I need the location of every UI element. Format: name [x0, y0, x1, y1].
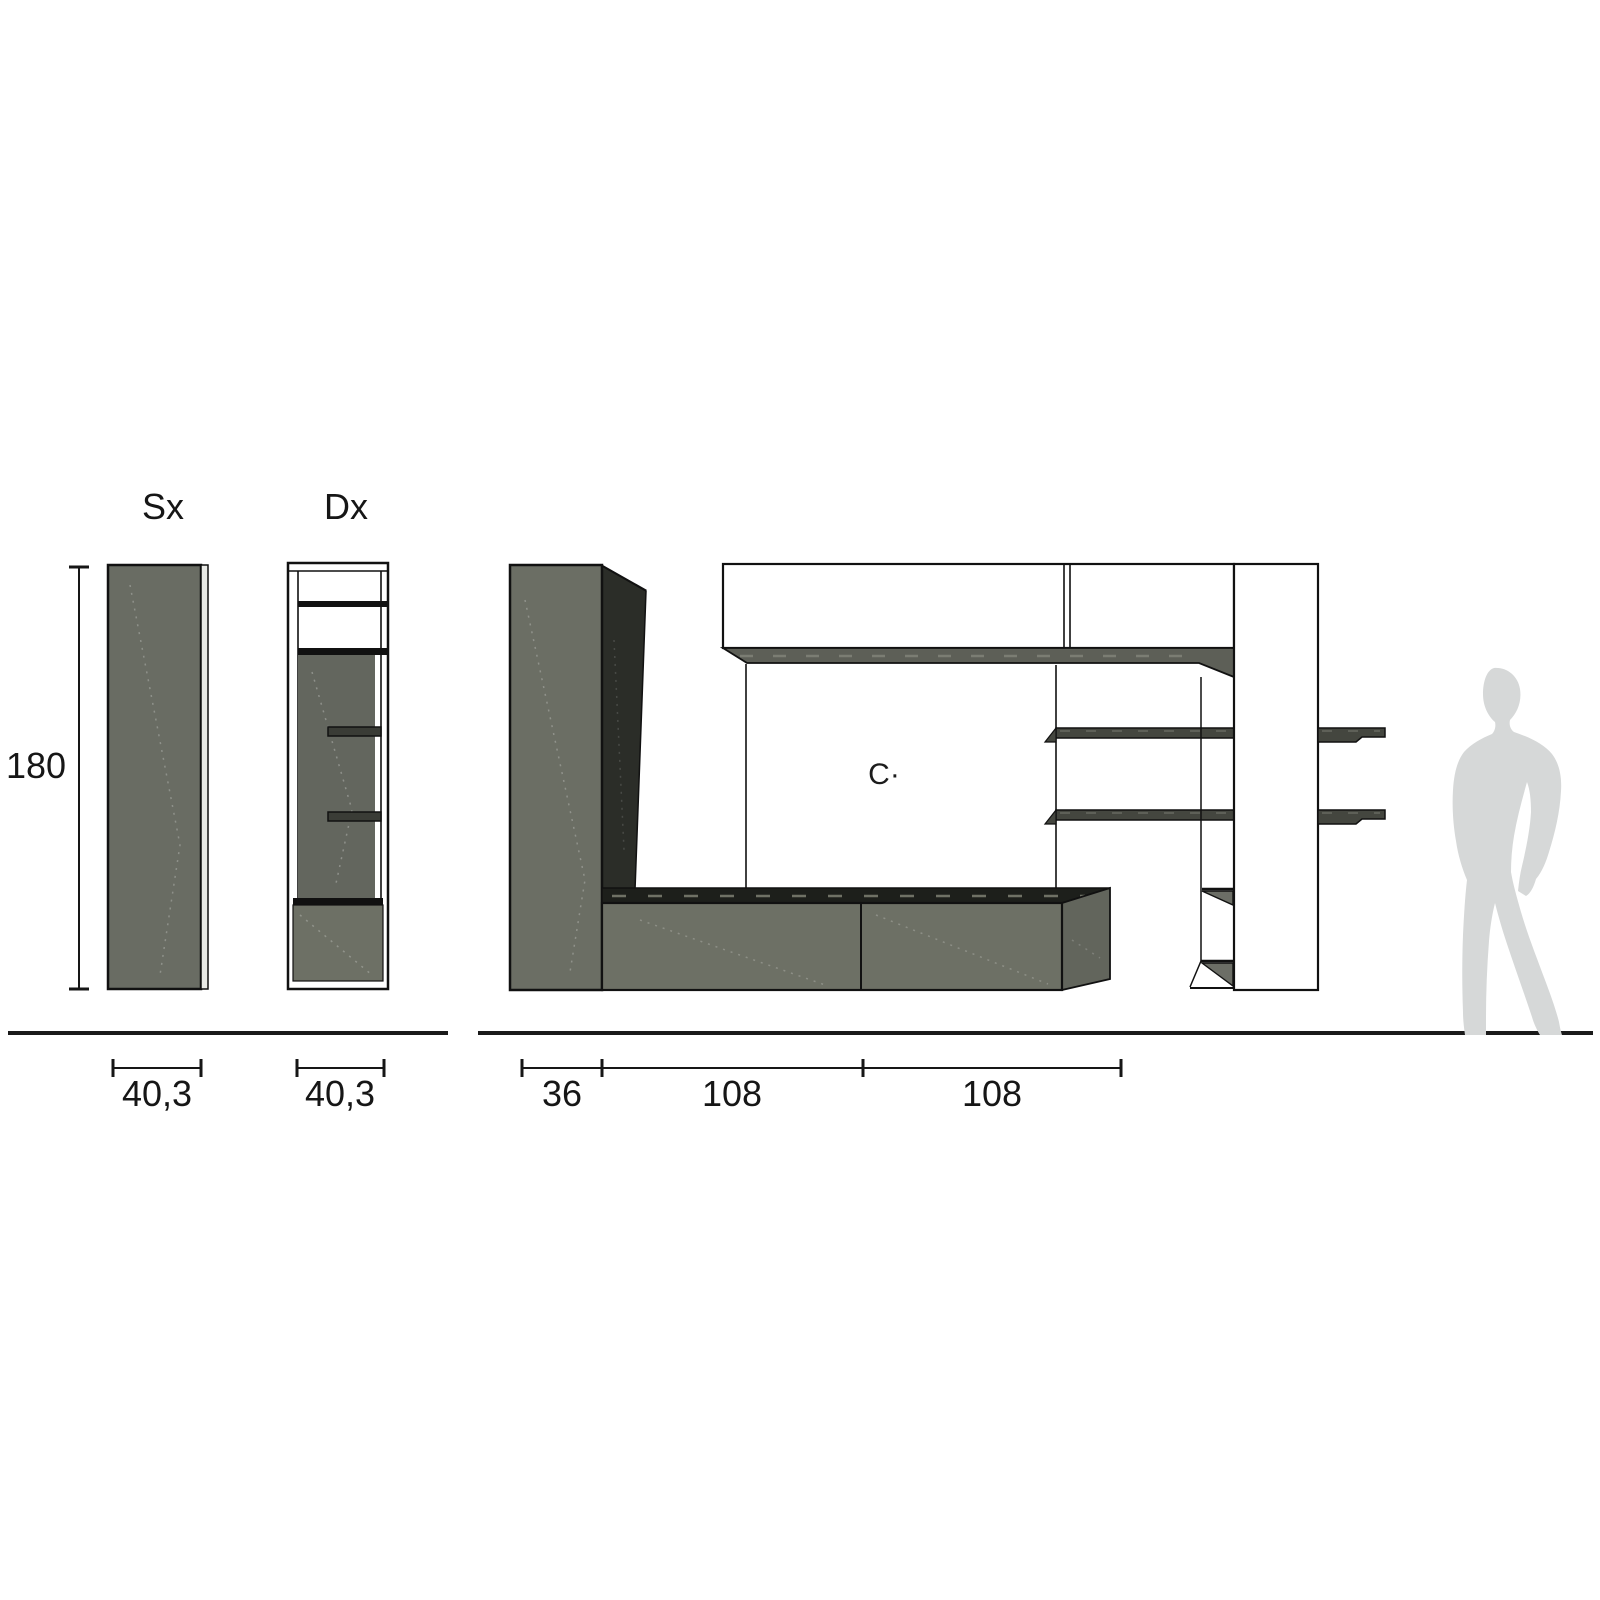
- dx-shelf-1: [328, 727, 381, 736]
- height-dimension-line: [69, 567, 89, 989]
- height-dimension-label: 180: [6, 748, 66, 784]
- dx-width-dimension-label: 40,3: [305, 1076, 375, 1112]
- dx-base-top-line: [293, 898, 383, 905]
- segment2-dimension-label: 108: [962, 1076, 1022, 1112]
- sx-width-dimension-label: 40,3: [122, 1076, 192, 1112]
- interior-shelf-2: [1045, 810, 1234, 824]
- front-view-unit: [510, 564, 1385, 990]
- dx-open-back: [298, 655, 375, 898]
- sx-panel-edge: [201, 565, 208, 989]
- front-view-dimension-line: [522, 1059, 1121, 1077]
- side-view-sx-panel: [108, 565, 208, 989]
- sx-view-label: Sx: [142, 489, 184, 525]
- base-right-side: [1062, 888, 1110, 990]
- wall-mark-label: C·: [868, 760, 900, 790]
- interior-shelf-1: [1045, 728, 1234, 742]
- dx-view-label: Dx: [324, 489, 368, 525]
- furniture-dimension-diagram: Sx Dx 180 40,3 40,3 36 108 108 C·: [0, 0, 1600, 1600]
- right-column-panel: [1234, 564, 1318, 990]
- upper-cabinet-underside: [723, 648, 1234, 677]
- dx-cabinet-bottom-line: [298, 648, 388, 655]
- tall-panel-dark-side: [602, 566, 646, 903]
- side-view-dx-cabinet: [288, 563, 388, 989]
- dx-shelf-2: [328, 812, 381, 821]
- dx-base-drawer: [293, 905, 383, 981]
- upper-cabinet-front: [723, 564, 1234, 648]
- human-silhouette: [1453, 668, 1562, 1035]
- tall-panel-front: [510, 565, 602, 990]
- segment1-dimension-label: 108: [702, 1076, 762, 1112]
- base-cabinet-front: [602, 903, 1062, 990]
- drawing-layer: [0, 0, 1600, 1600]
- open-shelf-wedge-2: [1202, 963, 1233, 986]
- right-wall-shelf-1: [1318, 728, 1385, 742]
- depth-dimension-label: 36: [542, 1076, 582, 1112]
- open-shelf-wedge-1: [1202, 891, 1233, 905]
- dx-top-shelf-line: [298, 601, 388, 607]
- sx-panel-front: [108, 565, 201, 989]
- right-wall-shelf-2: [1318, 810, 1385, 824]
- base-top-surface: [602, 888, 1110, 903]
- open-shelf-side-wall: [1190, 677, 1234, 988]
